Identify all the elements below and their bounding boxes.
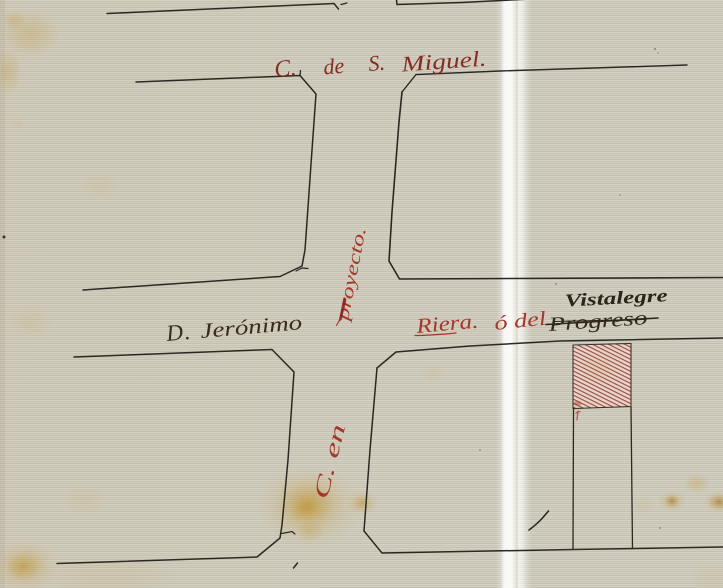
svg-text:C.: C.: [273, 55, 297, 83]
svg-text:D.: D.: [164, 319, 191, 346]
svg-text:de: de: [322, 53, 345, 80]
svg-text:S.: S.: [367, 50, 386, 76]
